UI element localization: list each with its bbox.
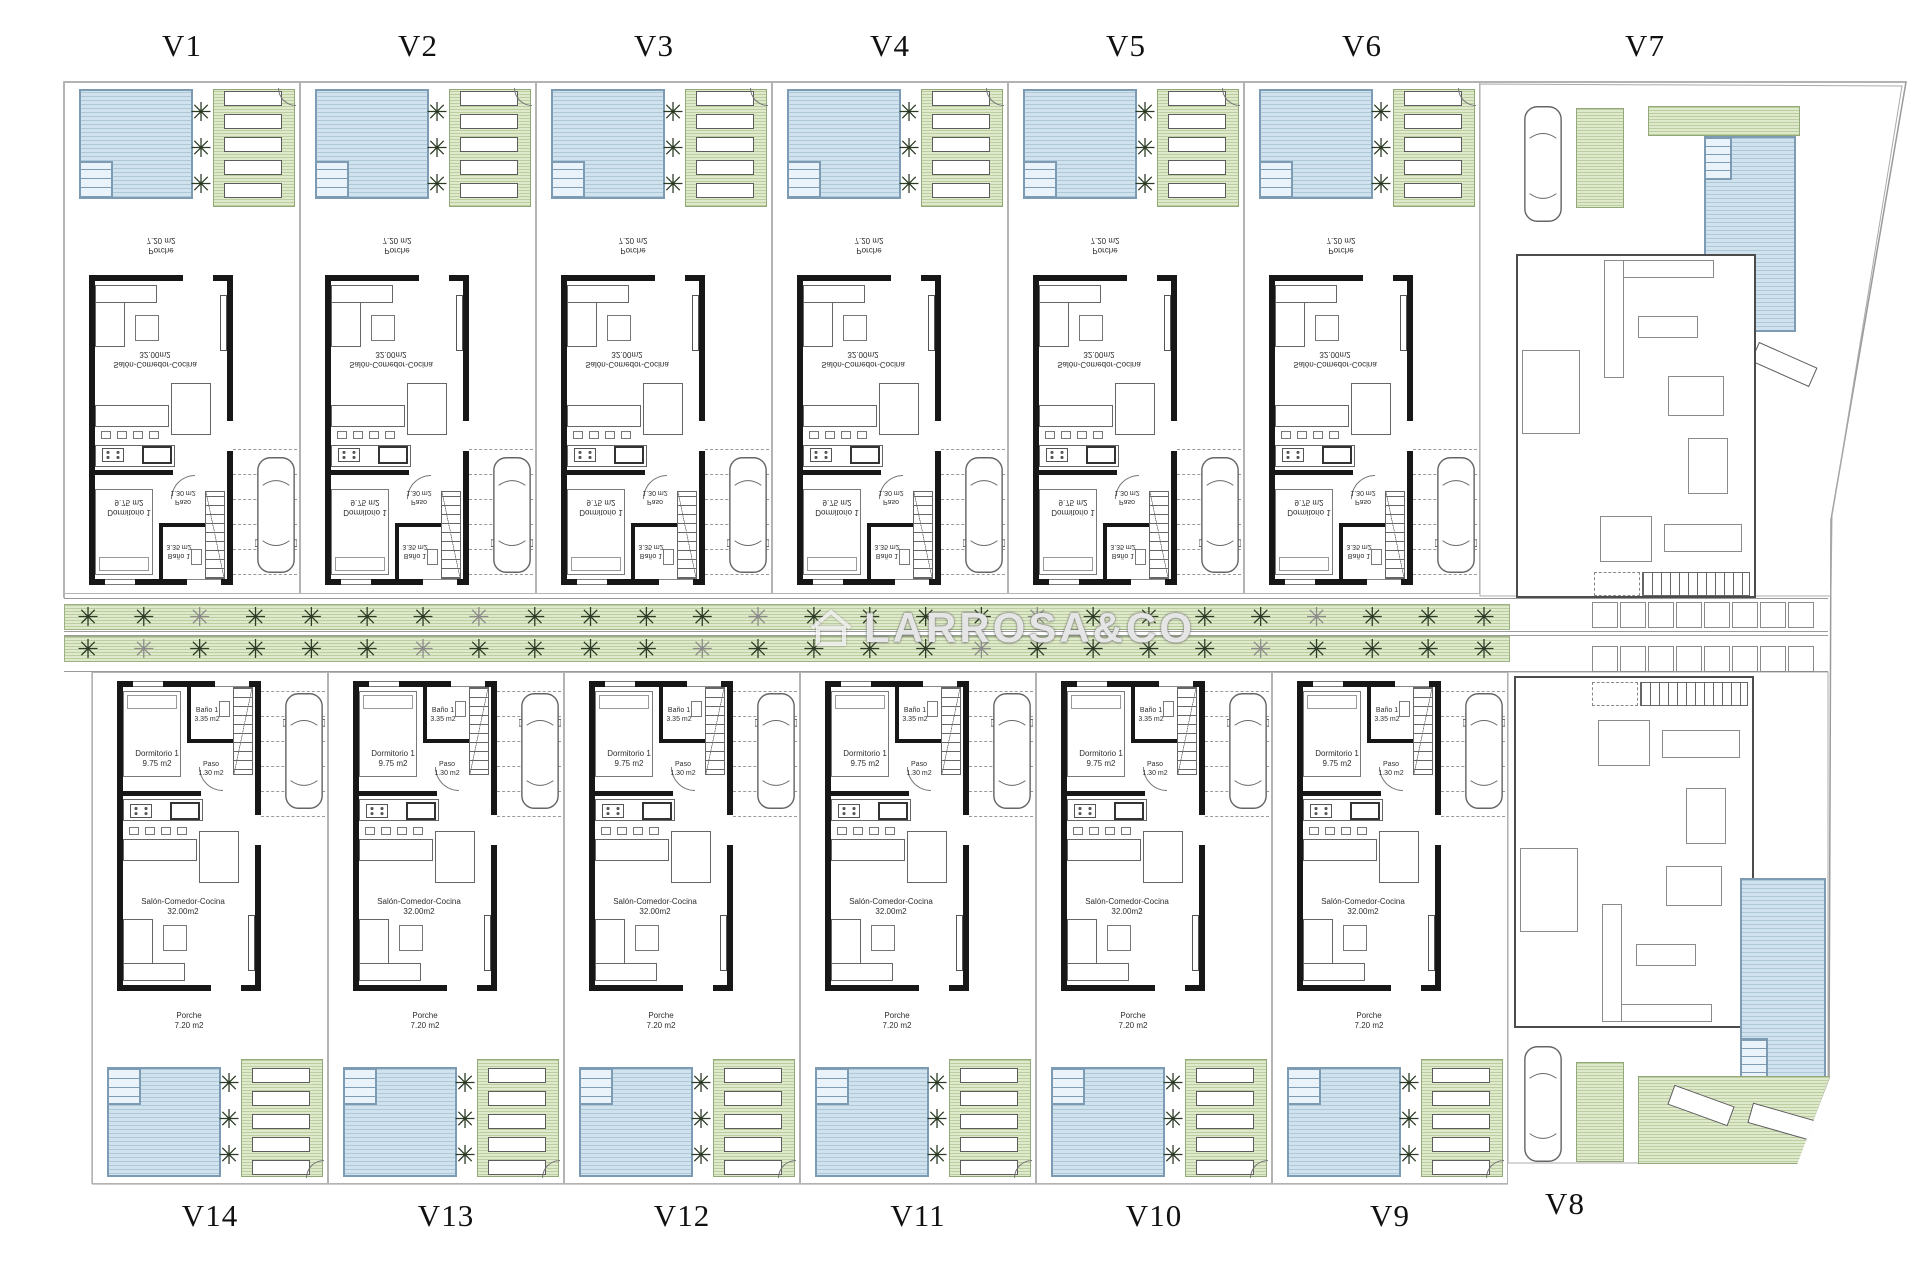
porch-label: Porche7.20 m2: [832, 1011, 962, 1031]
window: [841, 681, 871, 687]
sun-lounger: [224, 91, 282, 106]
bathroom-wall: [159, 523, 163, 579]
entry-opening: [491, 815, 497, 845]
patio: [213, 89, 295, 207]
villa-unit-v12: Dormitorio 19.75 m2 Baño 13.35 m2 Paso1.…: [564, 672, 800, 1184]
porch-opening: [683, 985, 713, 991]
garage-door: [895, 579, 929, 585]
pool-steps: [579, 1067, 613, 1105]
stairs: [233, 687, 253, 775]
terrace-stall: [1760, 602, 1786, 628]
bed: [1520, 848, 1578, 932]
porch-label: Porche7.20 m2: [360, 1011, 490, 1031]
coffee-table: [371, 315, 395, 341]
pool-steps: [315, 161, 349, 199]
bathroom-wall: [1131, 687, 1135, 743]
patio: [921, 89, 1003, 207]
bed: [123, 691, 181, 777]
dining-table: [1379, 831, 1419, 883]
bathroom-wall: [1367, 687, 1371, 743]
driveway-guide-line: [1413, 449, 1477, 450]
kitchen-counter: [803, 445, 883, 467]
dining-table: [435, 831, 475, 883]
bathroom-wall: [423, 739, 469, 743]
bathroom-wall: [867, 523, 871, 579]
pool-steps: [1740, 1038, 1768, 1078]
pool-steps: [1023, 161, 1057, 199]
sun-lounger: [1432, 1091, 1490, 1106]
patio: [477, 1059, 559, 1177]
stove-icon: [366, 804, 388, 818]
kitchen-island: [95, 405, 169, 427]
stool: [365, 827, 375, 835]
sun-lounger: [488, 1091, 546, 1106]
sofa: [595, 963, 657, 981]
kitchen-island: [831, 839, 905, 861]
porch-opening: [655, 275, 685, 281]
kitchen-appliance: [878, 802, 908, 820]
driveway-guide-line: [969, 816, 1033, 817]
stair-landing: [1594, 572, 1640, 596]
stool: [1093, 431, 1103, 439]
bedroom-wall: [1039, 470, 1117, 475]
bedroom-wall: [567, 470, 645, 475]
stool: [1325, 827, 1335, 835]
patio: [1185, 1059, 1267, 1177]
car-icon: [755, 687, 797, 815]
pool: [787, 89, 901, 199]
cabinet: [1686, 788, 1726, 844]
kitchen-counter: [1039, 445, 1119, 467]
bed: [359, 691, 417, 777]
toilet: [663, 549, 674, 565]
sun-lounger: [488, 1137, 546, 1152]
entry-opening: [699, 421, 705, 451]
terrace-stall: [1592, 602, 1618, 628]
bed: [831, 691, 889, 777]
villa-label-v8: V8: [1545, 1186, 1585, 1222]
sun-lounger: [932, 91, 990, 106]
bathroom-wall: [1131, 739, 1177, 743]
driveway-guide-line: [497, 816, 561, 817]
bathroom-wall: [659, 739, 705, 743]
sun-lounger: [724, 1068, 782, 1083]
stool: [1105, 827, 1115, 835]
kitchen-counter: [123, 799, 203, 821]
coffee-table: [635, 925, 659, 951]
building-footprint: Dormitorio 19.75 m2 Baño 13.35 m2 Paso1.…: [1297, 681, 1441, 991]
pool-steps: [79, 161, 113, 199]
sun-lounger: [1196, 1068, 1254, 1083]
stool: [809, 431, 819, 439]
dining-table: [407, 383, 447, 435]
living-room-label: Salón-Comedor-Cocina32.00m2: [1298, 897, 1428, 917]
door-arc: [643, 475, 667, 499]
kitchen-appliance: [1322, 446, 1352, 464]
stool: [1357, 827, 1367, 835]
porch-opening: [419, 275, 449, 281]
stool: [413, 827, 423, 835]
kitchen-counter: [359, 799, 439, 821]
tv-unit: [456, 295, 463, 351]
tv-unit: [1192, 915, 1199, 971]
sun-lounger: [460, 91, 518, 106]
stool: [353, 431, 363, 439]
porch-opening: [919, 985, 949, 991]
driveway-guide-line: [1441, 816, 1505, 817]
living-room-label: Salón-Comedor-Cocina32.00m2: [1270, 349, 1400, 369]
tv-unit: [956, 915, 963, 971]
porch-label: Porche7.20 m2: [1304, 1011, 1434, 1031]
stool: [1281, 431, 1291, 439]
stool: [1061, 431, 1071, 439]
sun-lounger: [1404, 91, 1462, 106]
stool: [397, 827, 407, 835]
stool: [1309, 827, 1319, 835]
bathroom-wall: [395, 523, 441, 527]
bed: [1067, 691, 1125, 777]
stair-landing: [1592, 682, 1638, 706]
coffee-table: [871, 925, 895, 951]
tv-unit: [220, 295, 227, 351]
wardrobe: [1668, 376, 1724, 416]
sun-lounger: [1196, 1137, 1254, 1152]
villa-label-v5: V5: [1106, 28, 1146, 64]
kitchen-appliance: [1114, 802, 1144, 820]
sofa: [831, 963, 893, 981]
patio: [713, 1059, 795, 1177]
bathroom-wall: [423, 687, 427, 743]
dining-table: [199, 831, 239, 883]
car-icon: [1463, 687, 1505, 815]
patio: [685, 89, 767, 207]
porch-opening: [447, 985, 477, 991]
sun-lounger: [1404, 137, 1462, 152]
building-footprint: Dormitorio 19.75 m2 Baño 13.35 m2 Paso1.…: [1033, 275, 1177, 585]
sun-lounger: [224, 160, 282, 175]
tv-unit: [1428, 915, 1435, 971]
living-room-label: Salón-Comedor-Cocina32.00m2: [590, 897, 720, 917]
stool: [1077, 431, 1087, 439]
stool: [837, 827, 847, 835]
watermark: LARROSA&CO: [808, 604, 1195, 652]
building-footprint: Dormitorio 19.75 m2 Baño 13.35 m2 Paso1.…: [89, 275, 233, 585]
sun-lounger: [696, 183, 754, 198]
window: [1285, 579, 1315, 585]
dining-table: [171, 383, 211, 435]
bed: [595, 691, 653, 777]
villa-label-v9: V9: [1370, 1198, 1410, 1234]
entry-opening: [963, 815, 969, 845]
terrace-stall: [1788, 646, 1814, 672]
kitchen-counter: [831, 799, 911, 821]
car-icon: [1522, 1040, 1564, 1168]
stove-icon: [1282, 448, 1304, 462]
stool: [1313, 431, 1323, 439]
door-arc: [1379, 767, 1403, 791]
tv-unit: [692, 295, 699, 351]
building-footprint: Dormitorio 19.75 m2 Baño 13.35 m2 Paso1.…: [1061, 681, 1205, 991]
bedroom-wall: [359, 791, 437, 796]
stool: [617, 827, 627, 835]
door-arc: [1115, 475, 1139, 499]
garage-door: [187, 579, 221, 585]
living-room-label: Salón-Comedor-Cocina32.00m2: [118, 897, 248, 917]
sun-lounger: [1404, 160, 1462, 175]
tv-unit: [248, 915, 255, 971]
sun-lounger: [696, 137, 754, 152]
bathroom-wall: [1339, 523, 1385, 527]
bathroom-wall: [395, 523, 399, 579]
sun-lounger: [460, 114, 518, 129]
sun-lounger: [488, 1068, 546, 1083]
toilet: [1163, 701, 1174, 717]
stool: [633, 827, 643, 835]
bed: [1522, 350, 1580, 434]
patio: [1393, 89, 1475, 207]
stairs: [705, 687, 725, 775]
entry-opening: [1199, 815, 1205, 845]
pool: [1287, 1067, 1401, 1177]
sun-lounger: [1404, 183, 1462, 198]
villa-label-v4: V4: [870, 28, 910, 64]
toilet: [427, 549, 438, 565]
stove-icon: [810, 448, 832, 462]
sun-lounger: [1168, 114, 1226, 129]
pool-steps: [551, 161, 585, 199]
watermark-text: LARROSA&CO: [864, 604, 1195, 652]
stove-icon: [574, 448, 596, 462]
site-plan-canvas: LARROSA&CO: [0, 0, 1920, 1280]
stool: [369, 431, 379, 439]
coffee-table: [1107, 925, 1131, 951]
toilet: [927, 701, 938, 717]
terrace-stall: [1676, 602, 1702, 628]
bed: [1275, 489, 1333, 575]
garage-door: [1367, 579, 1401, 585]
living-room-label: Salón-Comedor-Cocina32.00m2: [354, 897, 484, 917]
pool: [815, 1067, 929, 1177]
stool: [385, 431, 395, 439]
pool-steps: [787, 161, 821, 199]
window: [1313, 681, 1343, 687]
stool: [133, 431, 143, 439]
tv-unit: [1164, 295, 1171, 351]
toilet: [219, 701, 230, 717]
sofa: [1039, 285, 1101, 303]
terrace-stall: [1704, 646, 1730, 672]
toilet: [455, 701, 466, 717]
pool-steps: [1287, 1067, 1321, 1105]
entry-opening: [1435, 815, 1441, 845]
tv-unit: [1400, 295, 1407, 351]
sun-lounger: [724, 1091, 782, 1106]
stool: [149, 431, 159, 439]
sun-lounger: [960, 1137, 1018, 1152]
car-icon: [1199, 451, 1241, 579]
window: [577, 579, 607, 585]
car-icon: [991, 687, 1033, 815]
stool: [161, 827, 171, 835]
dining-table: [1143, 831, 1183, 883]
coffee-table: [843, 315, 867, 341]
car-icon: [255, 451, 297, 579]
sun-lounger: [1667, 1085, 1734, 1127]
sun-lounger: [488, 1114, 546, 1129]
window: [133, 681, 163, 687]
toilet: [1399, 701, 1410, 717]
stairs: [205, 491, 225, 579]
toilet: [899, 549, 910, 565]
patio: [949, 1059, 1031, 1177]
patio: [449, 89, 531, 207]
planter-strip: [1576, 1062, 1624, 1162]
stool: [1045, 431, 1055, 439]
stairs: [1149, 491, 1169, 579]
stool: [117, 431, 127, 439]
villa-unit-v1: Dormitorio 19.75 m2 Baño 13.35 m2 Paso1.…: [64, 82, 300, 594]
bathroom-wall: [187, 687, 191, 743]
building-footprint: Dormitorio 19.75 m2 Baño 13.35 m2 Paso1.…: [353, 681, 497, 991]
stool: [621, 431, 631, 439]
building-footprint: Dormitorio 19.75 m2 Baño 13.35 m2 Paso1.…: [1269, 275, 1413, 585]
stairs: [913, 491, 933, 579]
car-icon: [283, 687, 325, 815]
dining-table: [879, 383, 919, 435]
garage-door: [1131, 579, 1165, 585]
stairs: [469, 687, 489, 775]
coffee-table: [1079, 315, 1103, 341]
sofa: [1275, 285, 1337, 303]
bed: [1303, 691, 1361, 777]
toilet: [191, 549, 202, 565]
sun-lounger: [960, 1114, 1018, 1129]
kitchen-counter: [595, 799, 675, 821]
sun-lounger: [252, 1114, 310, 1129]
living-room-label: Salón-Comedor-Cocina32.00m2: [90, 349, 220, 369]
sun-lounger: [1432, 1137, 1490, 1152]
dining-table: [1598, 720, 1650, 766]
sun-lounger: [932, 183, 990, 198]
window: [813, 579, 843, 585]
bed: [331, 489, 389, 575]
stool: [177, 827, 187, 835]
porch-label: Porche7.20 m2: [1068, 1011, 1198, 1031]
sun-lounger: [1168, 91, 1226, 106]
kitchen-appliance: [406, 802, 436, 820]
sun-lounger: [960, 1068, 1018, 1083]
sun-lounger: [932, 160, 990, 175]
sun-lounger: [1432, 1068, 1490, 1083]
door-arc: [199, 767, 223, 791]
kitchen-island: [567, 405, 641, 427]
stool: [857, 431, 867, 439]
pool-steps: [1051, 1067, 1085, 1105]
terrace-stall: [1676, 646, 1702, 672]
building-footprint: Dormitorio 19.75 m2 Baño 13.35 m2 Paso1.…: [561, 275, 705, 585]
sun-lounger: [1196, 1091, 1254, 1106]
bathroom-wall: [659, 687, 663, 743]
porch-opening: [891, 275, 921, 281]
bed: [95, 489, 153, 575]
sun-lounger: [932, 137, 990, 152]
sun-lounger: [252, 1068, 310, 1083]
coffee-table: [163, 925, 187, 951]
kitchen-appliance: [850, 446, 880, 464]
sun-lounger: [960, 1160, 1018, 1175]
sofa: [123, 963, 185, 981]
stool: [573, 431, 583, 439]
sofa: [359, 963, 421, 981]
patio: [1421, 1059, 1503, 1177]
building-footprint: Dormitorio 19.75 m2 Baño 13.35 m2 Paso1.…: [117, 681, 261, 991]
window: [105, 579, 135, 585]
bedroom-wall: [95, 470, 173, 475]
bedroom-wall: [1067, 791, 1145, 796]
coffee-table: [1343, 925, 1367, 951]
stool: [1121, 827, 1131, 835]
stairs: [1640, 682, 1748, 706]
stove-icon: [602, 804, 624, 818]
villa-label-v12: V12: [654, 1198, 710, 1234]
pool: [1259, 89, 1373, 199]
sun-lounger: [1168, 183, 1226, 198]
road-green-band-south: [64, 636, 1510, 662]
window: [341, 579, 371, 585]
tv-unit: [720, 915, 727, 971]
villa-label-v3: V3: [634, 28, 674, 64]
stool: [841, 431, 851, 439]
kitchen-counter: [567, 445, 647, 467]
sun-lounger: [460, 183, 518, 198]
stool: [1089, 827, 1099, 835]
kitchen-island: [595, 839, 669, 861]
villa-v7-plot: [1480, 82, 1910, 598]
kitchen-appliance: [378, 446, 408, 464]
villa-unit-v11: Dormitorio 19.75 m2 Baño 13.35 m2 Paso1.…: [800, 672, 1036, 1184]
car-icon: [963, 451, 1005, 579]
car-icon: [1227, 687, 1269, 815]
road-edge-north: [64, 598, 1828, 599]
sun-lounger: [488, 1160, 546, 1175]
bedroom-wall: [803, 470, 881, 475]
bedroom-wall: [831, 791, 909, 796]
villa-label-v1: V1: [162, 28, 202, 64]
kitchen-counter: [1067, 799, 1147, 821]
stool: [145, 827, 155, 835]
entry-opening: [727, 815, 733, 845]
pool: [107, 1067, 221, 1177]
stool: [1297, 431, 1307, 439]
sun-lounger: [696, 91, 754, 106]
bathroom-wall: [895, 739, 941, 743]
sofa: [1303, 963, 1365, 981]
pool-steps: [1259, 161, 1293, 199]
window: [1077, 681, 1107, 687]
door-arc: [407, 475, 431, 499]
kitchen-counter: [1604, 260, 1624, 378]
kitchen-appliance: [170, 802, 200, 820]
sofa: [803, 285, 865, 303]
sun-lounger: [252, 1137, 310, 1152]
driveway-guide-line: [941, 449, 1005, 450]
kitchen-counter: [1602, 904, 1622, 1022]
stool: [869, 827, 879, 835]
pool: [79, 89, 193, 199]
coffee-table: [399, 925, 423, 951]
dining-table: [1600, 516, 1652, 562]
porch-label: Porche7.20 m2: [1276, 235, 1406, 255]
